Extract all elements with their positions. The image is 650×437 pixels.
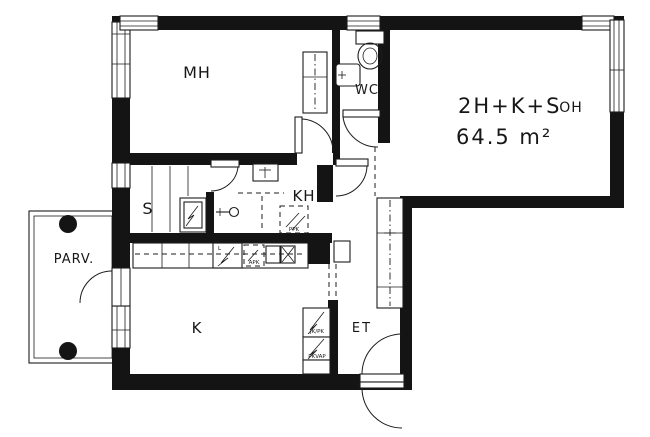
hall-wardrobe	[377, 198, 403, 308]
kitchen-counter: L APK	[133, 243, 308, 268]
bedroom-closet	[303, 52, 327, 113]
room-label-toilet: WC	[355, 83, 379, 98]
appliance-cabinet	[303, 360, 330, 374]
bedroom-window-top	[120, 16, 158, 30]
floor-plan: PPK L APK	[0, 0, 650, 437]
bathroom-water-heater	[253, 164, 278, 181]
wall-bedroom-wc	[332, 30, 340, 153]
room-label-bedroom: MH	[183, 63, 211, 82]
wall-sauna-bathroom	[206, 192, 214, 240]
freezer-reservation: PKVAP	[303, 337, 330, 360]
kitchen-window-west	[112, 306, 130, 348]
cold-appliances: JK/PK PKVAP	[303, 308, 330, 374]
wall-bathroom-east	[317, 165, 333, 202]
wall-kitchen-chunk	[308, 240, 330, 264]
room-label-bathroom: KH	[292, 187, 315, 205]
living-window-top	[582, 16, 614, 30]
room-label-balcony: PARV.	[54, 252, 95, 267]
room-label-kitchen: K	[192, 319, 203, 337]
room-label-hall: ET	[352, 321, 372, 336]
balcony-post-top	[59, 215, 77, 233]
sauna-heater	[180, 198, 206, 232]
balcony-post-bottom	[59, 342, 77, 360]
bedroom-window-west	[112, 22, 130, 98]
floor-plan-drawing: PPK L APK	[0, 0, 650, 437]
washer-label: PPK	[289, 227, 300, 233]
dishwasher-label: APK	[249, 260, 260, 266]
wall-bathroom-kitchen	[130, 233, 332, 243]
apartment-type: 2H+K+S	[458, 94, 561, 118]
wc-window-top	[347, 16, 380, 30]
room-label-sauna: S	[142, 199, 153, 218]
apartment-area: 64.5 m²	[456, 125, 552, 149]
living-window-east	[610, 20, 624, 112]
room-label-living: OH	[559, 100, 583, 116]
hall-cabinet	[334, 241, 350, 262]
wall-living-south	[402, 196, 624, 208]
sauna-window-west	[112, 163, 130, 188]
fridge-freezer: JK/PK	[303, 308, 330, 337]
freezer-label: PKVAP	[308, 354, 326, 360]
fridge-label: JK/PK	[309, 329, 324, 335]
